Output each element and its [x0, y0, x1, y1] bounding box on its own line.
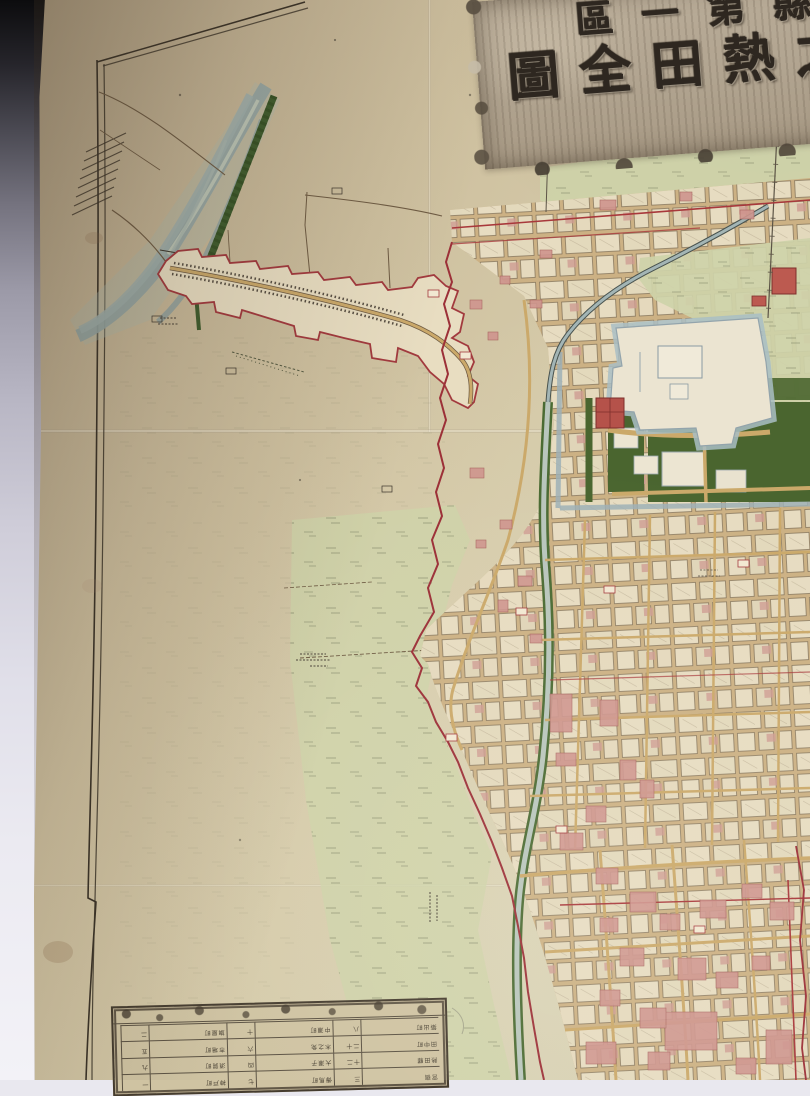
legend-cell: 八 [332, 1019, 361, 1036]
legend-cell: 築出町 [361, 1017, 439, 1036]
title-char: 圖 [506, 49, 562, 105]
legend-cell: 三 [334, 1068, 363, 1085]
legend-cell: 田中町 [361, 1033, 439, 1052]
legend-cell: 六 [227, 1038, 256, 1055]
legend-cell: 十二 [333, 1052, 362, 1069]
title-char: 區 [574, 0, 615, 40]
legend-cell: 大瀬子 [256, 1053, 334, 1072]
legend-cell: 二 [120, 1024, 149, 1041]
legend-cell: 木之免 [255, 1036, 333, 1055]
legend-cell: 傳馬町 [256, 1069, 334, 1088]
legend-cell: 神戸町 [150, 1072, 228, 1091]
title-char: 田 [650, 38, 706, 94]
legend-cell: 中瀬町 [255, 1020, 333, 1039]
title-char: 第 [706, 0, 747, 30]
legend-cell: 十 [226, 1022, 255, 1039]
title-char: 縣 [772, 0, 810, 24]
legend-grid: 宮宿三傳馬町七神戸町一熱田驛十二大瀬子四須賀町九田中町二十木之免六市場町五築出町… [120, 1017, 440, 1091]
legend-cell: 熱田驛 [362, 1050, 440, 1069]
title-char: 一 [640, 0, 681, 35]
distance-table: 宮宿三傳馬町七神戸町一熱田驛十二大瀬子四須賀町九田中町二十木之免六市場町五築出町… [111, 998, 449, 1096]
temple-red-building [772, 268, 796, 294]
title-char: 熱 [721, 32, 777, 88]
legend-cell: 五 [121, 1041, 150, 1058]
title-char: 全 [578, 44, 634, 100]
legend-cell: 二十 [333, 1035, 362, 1052]
legend-cell: 須賀町 [150, 1055, 228, 1074]
title-cartouche: 區 一 第 縣 圖 全 田 熱 之 [472, 0, 810, 169]
legend-cell: 一 [122, 1074, 151, 1091]
title-char: 之 [793, 27, 810, 83]
legend-cell: 九 [121, 1057, 150, 1074]
legend-cell: 市場町 [149, 1039, 227, 1058]
frame-hatch-marks [72, 133, 126, 215]
legend-cell: 旗屋町 [149, 1022, 227, 1041]
legend-cell: 宮宿 [362, 1066, 440, 1085]
legend-cell: 四 [227, 1055, 256, 1072]
